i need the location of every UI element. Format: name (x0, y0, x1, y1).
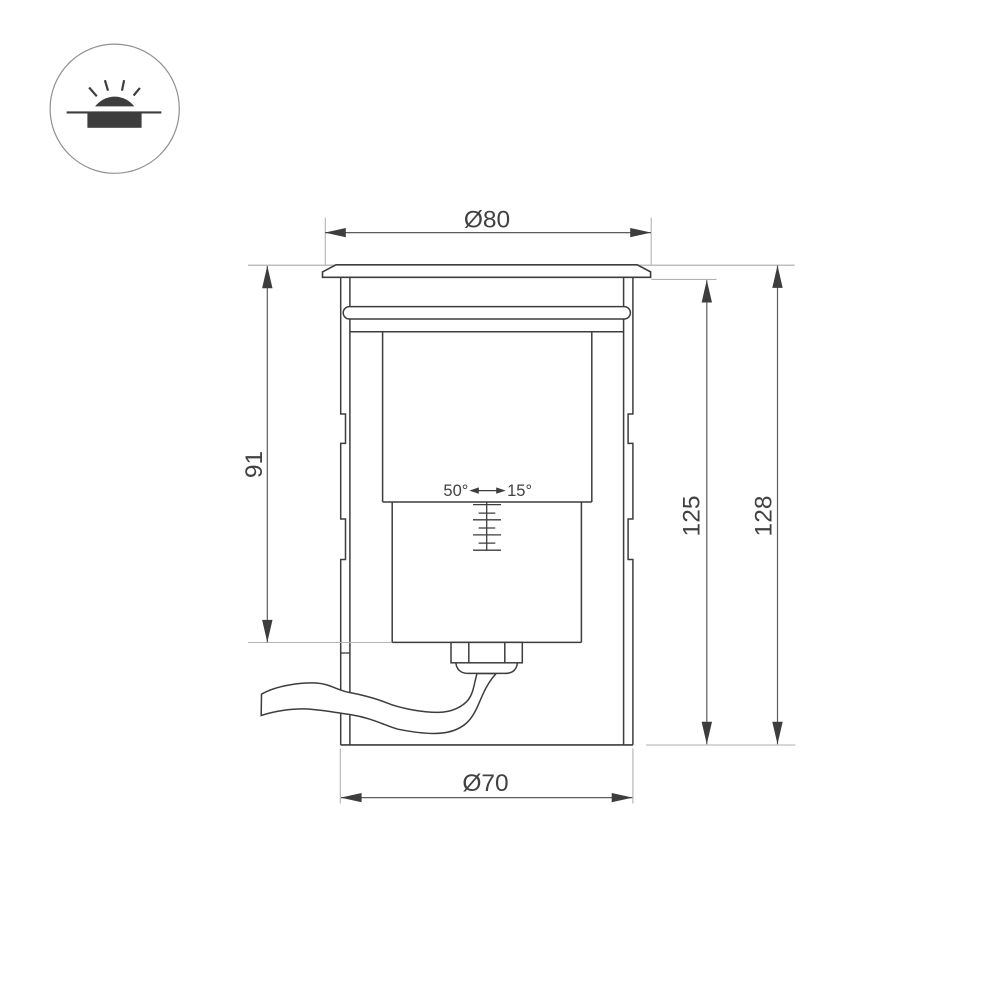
svg-text:128: 128 (751, 496, 778, 537)
svg-text:50°: 50° (443, 482, 468, 500)
svg-text:Ø70: Ø70 (462, 770, 508, 797)
svg-text:125: 125 (679, 496, 706, 537)
svg-text:91: 91 (241, 451, 268, 478)
svg-text:15°: 15° (507, 482, 532, 500)
svg-text:Ø80: Ø80 (464, 206, 510, 233)
